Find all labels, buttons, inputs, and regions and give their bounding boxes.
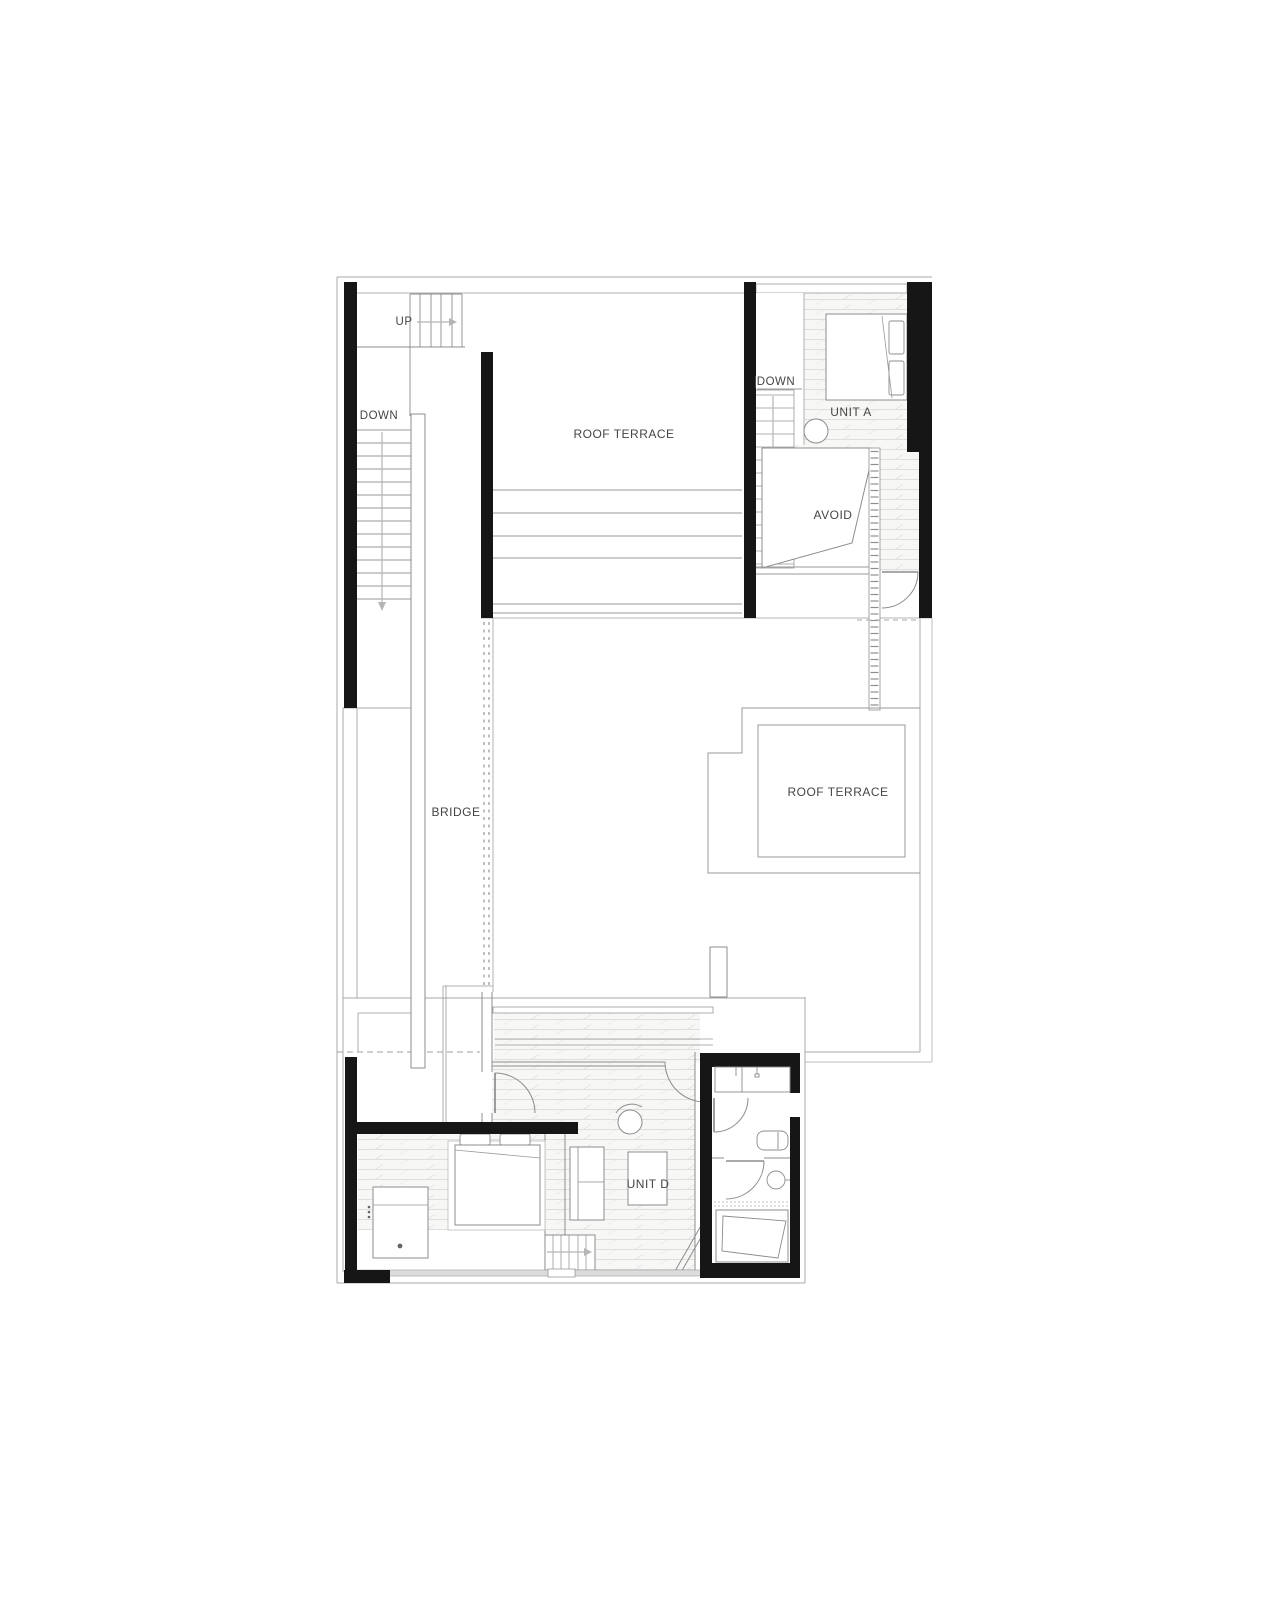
unit-a-window-band [756, 284, 907, 293]
roof-terrace-upper-steps [493, 490, 742, 613]
flue-shaft [710, 947, 727, 997]
label-bridge: BRIDGE [431, 805, 480, 819]
unit-d-bed [448, 1134, 545, 1230]
floor-plan-canvas: UP DOWN ROOF TERRACE DOWN UNIT A AVOID B… [0, 0, 1280, 1600]
bathroom-block [700, 1053, 803, 1278]
unit-d-stairs [545, 1235, 595, 1270]
unit-a-bed [826, 314, 907, 400]
wall-west-upper [344, 282, 357, 708]
stairs-up [354, 294, 465, 416]
label-avoid: AVOID [814, 508, 853, 522]
label-roof-terrace-upper: ROOF TERRACE [573, 427, 674, 441]
south-sill-band [357, 1270, 703, 1276]
wall-terrace-west [481, 352, 493, 618]
unit-d-rug [368, 1187, 428, 1258]
unit-a-stool [804, 419, 828, 443]
down-arrow-west-icon [378, 432, 386, 611]
floor-plan-drawing [0, 0, 1280, 1600]
unit-a-door [882, 572, 918, 608]
label-down-unit-a: DOWN [756, 376, 796, 388]
bridge-parapet [411, 414, 425, 1068]
unit-d-sofa [570, 1147, 604, 1220]
label-roof-terrace-right: ROOF TERRACE [787, 785, 888, 799]
wall-unit-d-bedroom [352, 1122, 578, 1134]
label-unit-d: UNIT D [627, 1177, 670, 1191]
wall-unit-a-west [744, 282, 756, 618]
shower-tray [716, 1210, 788, 1262]
north-glazing-band [493, 1007, 713, 1013]
wall-unit-a-east-lower [919, 452, 932, 618]
label-unit-a: UNIT A [830, 405, 871, 419]
bridge-edge [482, 618, 493, 1122]
wall-west-lower [345, 1057, 357, 1282]
label-down-west: DOWN [360, 410, 398, 422]
bathroom-closet [715, 1067, 790, 1092]
wall-south-west [344, 1270, 390, 1283]
toilet [757, 1131, 788, 1150]
bathroom-niche [786, 1093, 803, 1117]
wall-unit-a-east-upper [907, 282, 932, 452]
stair-threshold [548, 1269, 575, 1277]
label-up: UP [396, 316, 413, 328]
stairs-down-west [357, 430, 411, 599]
ladder-strip [869, 448, 880, 710]
up-arrow-icon [417, 318, 457, 326]
